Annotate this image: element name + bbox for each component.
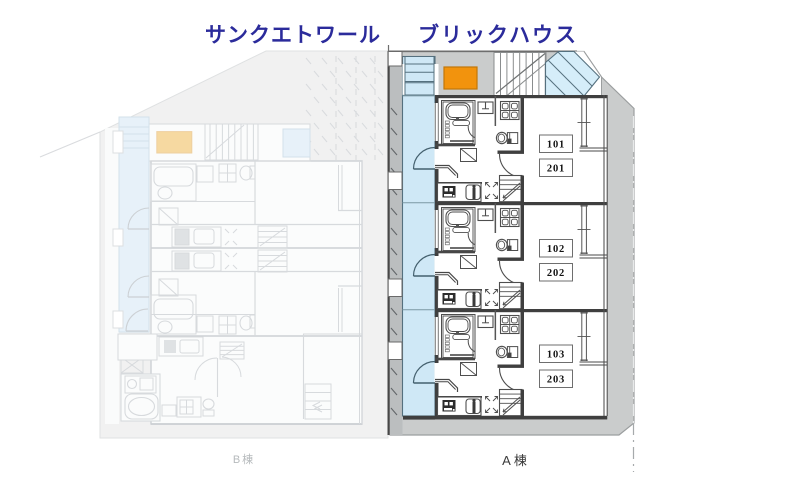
svg-text:B棟: B棟 bbox=[233, 452, 255, 466]
svg-text:102: 102 bbox=[547, 244, 565, 255]
svg-text:202: 202 bbox=[547, 268, 565, 279]
svg-text:A棟: A棟 bbox=[502, 453, 530, 468]
svg-text:ブリックハウス: ブリックハウス bbox=[418, 23, 578, 47]
svg-text:203: 203 bbox=[547, 374, 565, 385]
svg-text:201: 201 bbox=[547, 163, 565, 174]
svg-text:103: 103 bbox=[547, 349, 565, 360]
svg-text:101: 101 bbox=[547, 139, 565, 150]
svg-text:サンクエトワール: サンクエトワール bbox=[205, 24, 381, 47]
